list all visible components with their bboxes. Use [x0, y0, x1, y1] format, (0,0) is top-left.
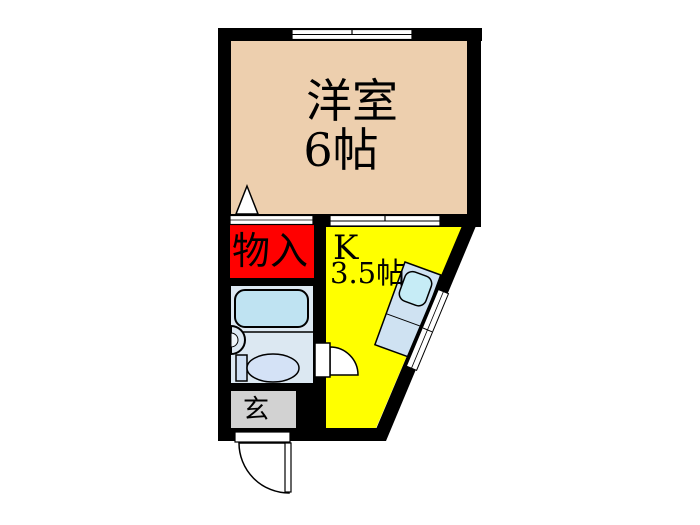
western-room-size: 6帖 [303, 123, 378, 177]
wall-entrance-column [296, 390, 326, 428]
bathroom-door-leaf [315, 343, 330, 377]
bathtub [235, 290, 308, 327]
wall-left [218, 28, 231, 441]
bathroom-unit [228, 283, 314, 385]
kitchen-size: 3.5帖 [330, 256, 405, 290]
floor-plan-canvas: 洋室 6帖 物入 K 3.5帖 玄 [0, 0, 700, 525]
toilet-tank [236, 355, 247, 381]
toilet-bowl [247, 354, 299, 382]
entrance-opening [235, 432, 290, 442]
wall-bath-bottom [218, 383, 326, 391]
entrance-label: 玄 [243, 395, 269, 425]
wall-right [467, 28, 481, 222]
floor-plan-page: 洋室 6帖 物入 K 3.5帖 玄 [0, 0, 700, 525]
western-room-label: 洋室 [306, 74, 398, 128]
wall-closet-bath [226, 277, 326, 286]
entrance-door-leaf [285, 443, 291, 492]
entrance-door-arc [239, 443, 289, 493]
closet-label: 物入 [232, 229, 308, 273]
